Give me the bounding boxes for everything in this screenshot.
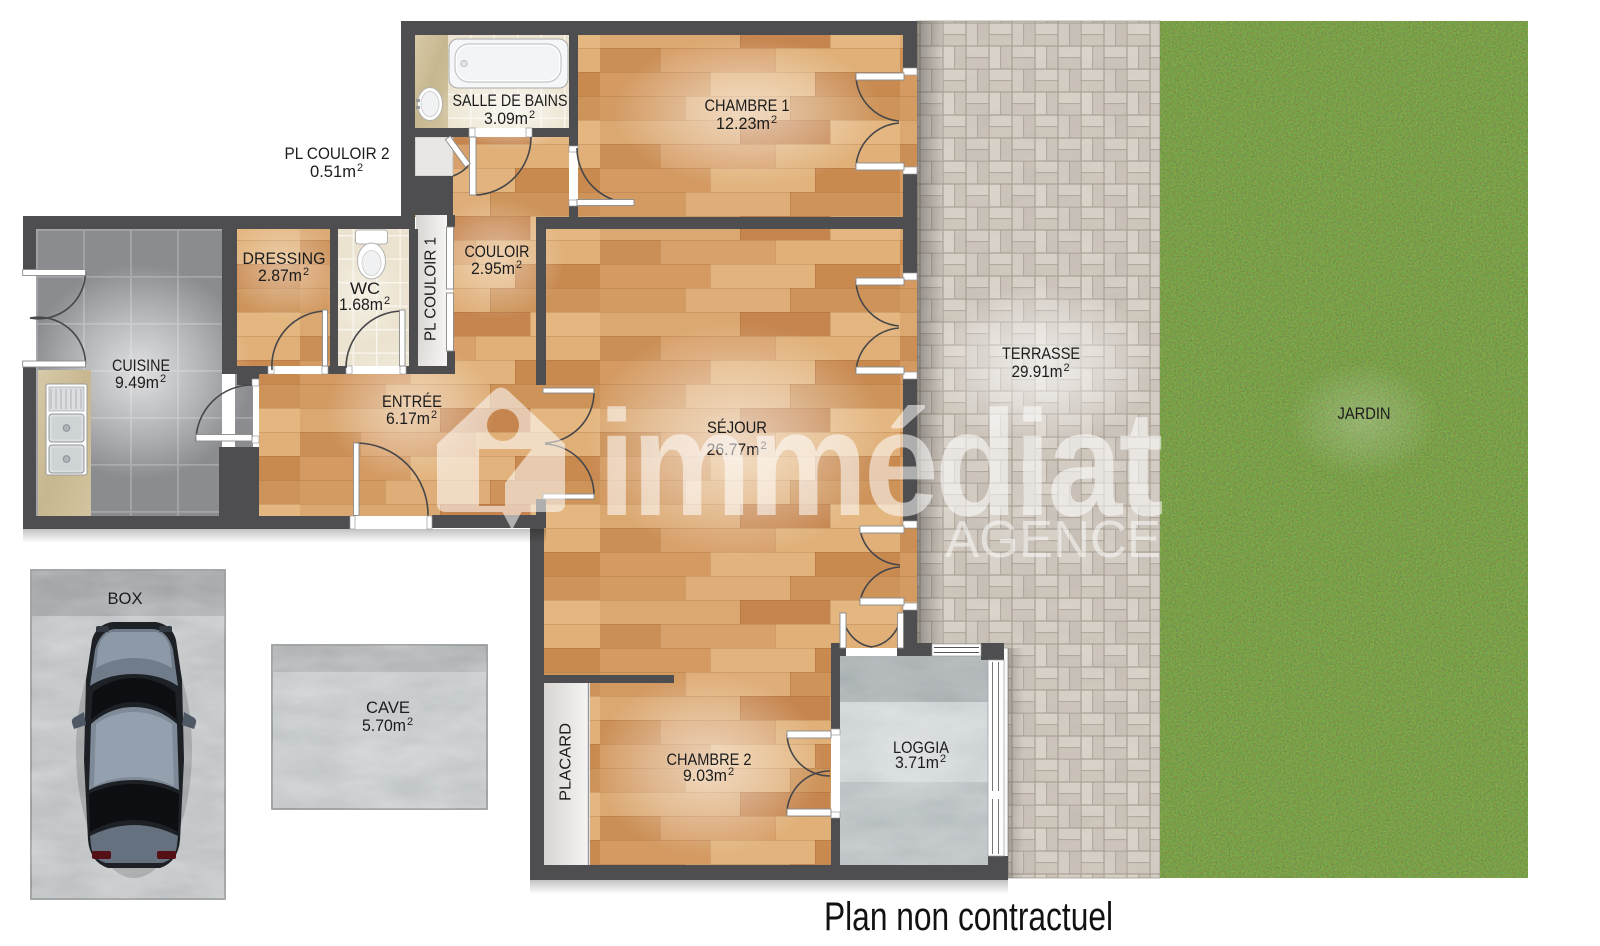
svg-text:2: 2 (771, 114, 777, 126)
svg-text:SALLE DE BAINS: SALLE DE BAINS (453, 91, 568, 110)
svg-text:0.51m: 0.51m (310, 162, 356, 181)
svg-text:2: 2 (431, 409, 437, 421)
svg-text:2: 2 (384, 295, 390, 307)
svg-text:JARDIN: JARDIN (1338, 404, 1391, 423)
svg-text:CAVE: CAVE (366, 698, 410, 717)
svg-text:2: 2 (357, 162, 363, 174)
svg-text:AGENCE: AGENCE (945, 511, 1161, 569)
svg-text:PL COULOIR 2: PL COULOIR 2 (285, 144, 390, 163)
svg-text:PLACARD: PLACARD (558, 723, 575, 801)
svg-text:PL COULOIR 1: PL COULOIR 1 (423, 237, 440, 341)
svg-text:3.09m: 3.09m (484, 109, 528, 128)
svg-text:2: 2 (940, 753, 946, 765)
svg-text:12.23m: 12.23m (716, 114, 770, 133)
svg-text:2: 2 (160, 373, 166, 385)
svg-text:9.03m: 9.03m (683, 766, 727, 785)
svg-text:CHAMBRE 1: CHAMBRE 1 (705, 96, 790, 115)
svg-text:Plan non contractuel: Plan non contractuel (824, 895, 1113, 939)
svg-text:2.87m: 2.87m (258, 266, 302, 285)
svg-text:2: 2 (728, 766, 734, 778)
svg-text:BOX: BOX (108, 589, 143, 608)
svg-text:2: 2 (529, 109, 535, 121)
svg-text:2: 2 (303, 266, 309, 278)
svg-text:9.49m: 9.49m (115, 373, 159, 392)
svg-text:2.95m: 2.95m (471, 259, 515, 278)
svg-text:TERRASSE: TERRASSE (1002, 344, 1080, 363)
svg-text:3.71m: 3.71m (895, 753, 939, 772)
svg-text:1.68m: 1.68m (339, 295, 383, 314)
svg-text:6.17m: 6.17m (386, 409, 430, 428)
svg-text:5.70m: 5.70m (362, 716, 406, 735)
svg-text:2: 2 (1064, 362, 1070, 374)
svg-text:2: 2 (407, 716, 413, 728)
svg-text:2: 2 (516, 259, 522, 271)
